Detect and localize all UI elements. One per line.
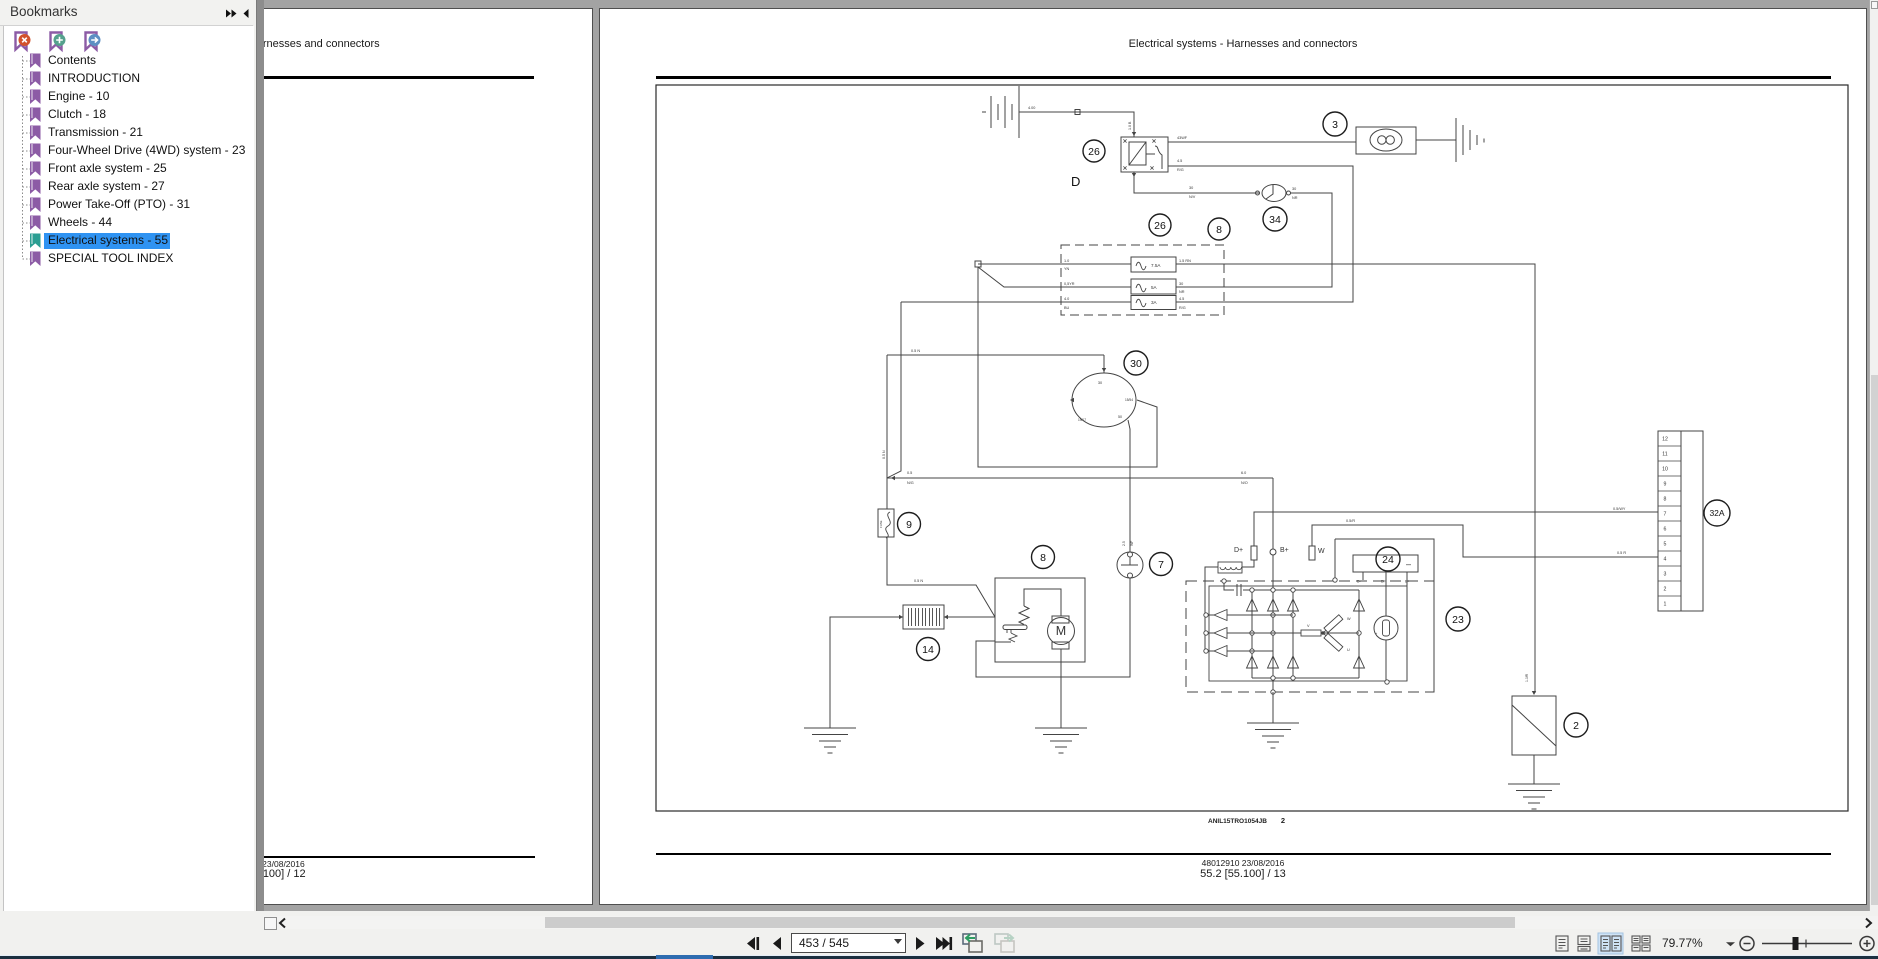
- svg-text:7.5A: 7.5A: [1151, 263, 1161, 268]
- svg-text:W: W: [1347, 617, 1351, 621]
- svg-text:0.5: 0.5: [907, 471, 912, 475]
- svg-text:0.5/R: 0.5/R: [1346, 519, 1355, 523]
- svg-text:0.5/WY: 0.5/WY: [1613, 507, 1626, 511]
- svg-text:30: 30: [1130, 358, 1142, 370]
- svg-text:4.00: 4.00: [1028, 106, 1035, 110]
- svg-text:4.5: 4.5: [1177, 159, 1182, 163]
- svg-text:D+: D+: [1234, 547, 1243, 554]
- svg-text:1.5 RN: 1.5 RN: [1179, 259, 1191, 263]
- svg-text:R/G: R/G: [1179, 306, 1186, 310]
- svg-text:5A: 5A: [1151, 285, 1158, 290]
- svg-text:26: 26: [1154, 220, 1166, 232]
- svg-text:7: 7: [1158, 559, 1164, 571]
- svg-text:2: 2: [1664, 587, 1667, 593]
- svg-text:0.5 N: 0.5 N: [882, 450, 886, 459]
- svg-text:R/G: R/G: [1177, 168, 1184, 172]
- svg-text:26: 26: [1088, 146, 1100, 158]
- svg-text:NR: NR: [1292, 196, 1298, 200]
- svg-text:FUSE: FUSE: [879, 520, 883, 528]
- svg-text:BU: BU: [1064, 306, 1070, 310]
- svg-text:6: 6: [1664, 527, 1667, 533]
- svg-text:43WF: 43WF: [1177, 136, 1188, 140]
- svg-text:D-: D-: [1357, 580, 1361, 584]
- svg-text:1: 1: [1664, 602, 1667, 608]
- svg-text:NR: NR: [1179, 290, 1185, 294]
- svg-text:30: 30: [1189, 186, 1193, 190]
- svg-text:5: 5: [1664, 542, 1667, 548]
- svg-text:2: 2: [1573, 720, 1579, 732]
- svg-text:7: 7: [1664, 512, 1667, 518]
- svg-text:24: 24: [1382, 554, 1394, 566]
- svg-text:2.5: 2.5: [1122, 541, 1126, 546]
- svg-text:0.5 N: 0.5 N: [911, 349, 920, 353]
- svg-text:D: D: [1071, 174, 1080, 189]
- svg-text:0,5YR: 0,5YR: [1064, 282, 1075, 286]
- svg-text:10: 10: [1662, 467, 1668, 473]
- svg-text:23: 23: [1452, 614, 1464, 626]
- svg-text:0.5 R: 0.5 R: [1617, 551, 1626, 555]
- svg-text:+: +: [1375, 631, 1378, 636]
- svg-text:11: 11: [1662, 452, 1667, 458]
- svg-text:30: 30: [1098, 381, 1102, 385]
- svg-text:W: W: [1318, 548, 1325, 555]
- svg-text:19/17: 19/17: [1078, 418, 1086, 422]
- svg-text:B+: B+: [1280, 547, 1289, 554]
- svg-text:1.0/R: 1.0/R: [1525, 673, 1529, 682]
- svg-text:9: 9: [906, 519, 912, 531]
- svg-text:30: 30: [1179, 282, 1183, 286]
- svg-text:B+: B+: [1405, 580, 1409, 584]
- svg-text:U: U: [1347, 648, 1350, 652]
- svg-text:1.0 B: 1.0 B: [1128, 121, 1132, 130]
- svg-text:1.0: 1.0: [1064, 259, 1069, 263]
- svg-text:4: 4: [1664, 557, 1667, 563]
- svg-text:8: 8: [1040, 552, 1046, 564]
- svg-text:30: 30: [1292, 187, 1296, 191]
- svg-text:50: 50: [1118, 415, 1122, 419]
- svg-text:0.5 N: 0.5 N: [914, 579, 923, 583]
- svg-text:N/O: N/O: [1241, 481, 1248, 485]
- svg-text:9: 9: [1664, 482, 1667, 488]
- svg-text:WF: WF: [1130, 541, 1134, 546]
- svg-text:4.0: 4.0: [1064, 297, 1069, 301]
- svg-text:4.5: 4.5: [1179, 297, 1184, 301]
- svg-text:N/V: N/V: [1189, 195, 1196, 199]
- svg-text:14: 14: [922, 644, 934, 656]
- svg-text:34: 34: [1269, 214, 1281, 226]
- svg-text:N/G: N/G: [907, 481, 914, 485]
- svg-text:3: 3: [1332, 119, 1338, 131]
- svg-text:M: M: [1056, 624, 1066, 638]
- svg-text:YN: YN: [1064, 267, 1070, 271]
- svg-text:32A: 32A: [1709, 508, 1724, 518]
- svg-text:12: 12: [1662, 437, 1668, 443]
- svg-text:8: 8: [1664, 497, 1667, 503]
- svg-text:6.0: 6.0: [1241, 471, 1246, 475]
- svg-text:15/54: 15/54: [1125, 398, 1133, 402]
- svg-text:3A: 3A: [1151, 300, 1158, 305]
- svg-text:V: V: [1307, 624, 1310, 628]
- svg-text:DF: DF: [1381, 580, 1386, 584]
- svg-text:3: 3: [1664, 572, 1667, 578]
- svg-text:–: –: [1406, 559, 1411, 569]
- svg-text:8: 8: [1216, 224, 1222, 236]
